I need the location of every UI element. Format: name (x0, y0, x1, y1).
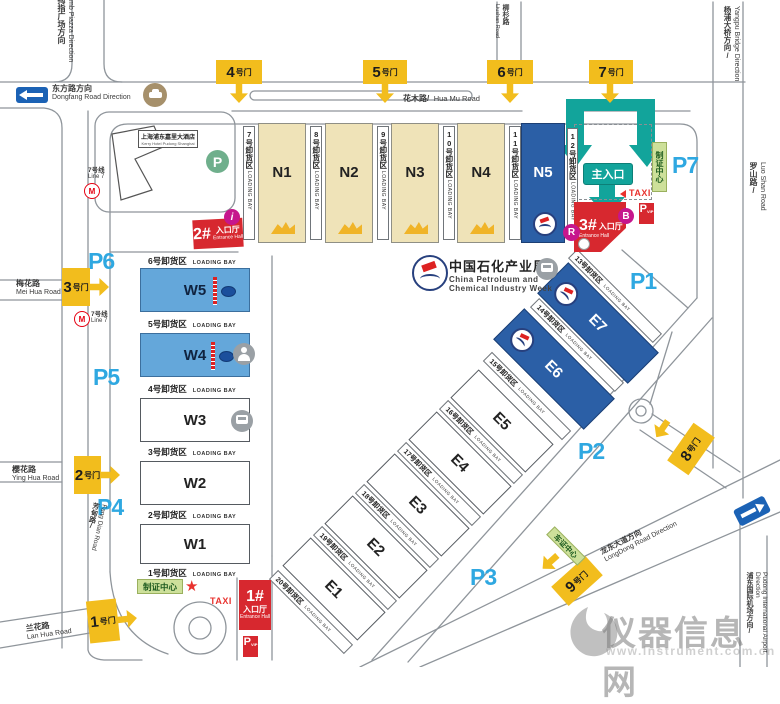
loading-bay-2-label: 2号卸货区 (148, 510, 187, 520)
loading-bay-5-en: LOADING BAY (193, 323, 237, 329)
hall-w3: W3 (140, 398, 250, 442)
direction-yangpu-en: Yangpu Bridge Direction (733, 6, 740, 126)
badge-center-right: 制证中心 (652, 142, 667, 192)
gate-3-suffix: 号门 (73, 282, 89, 293)
taxi-stand-icon (143, 83, 167, 107)
road-huamu-en: Hua Mu Road (434, 94, 480, 103)
hall-e1-label: E1 (321, 576, 346, 601)
metro-logo-icon-gate3 (74, 311, 90, 327)
expo-logo-yellow (338, 222, 362, 234)
loading-bay-10: 10号卸货区 LOADING BAY (443, 126, 455, 240)
road-yinghua-zh: 樱花路 (12, 464, 59, 475)
badge-b-letter: B (622, 211, 629, 222)
parking-p5: P5 (93, 364, 119, 391)
loading-bay-9-en: LOADING BAY (380, 171, 386, 210)
entrance-hall-2-number: 2# (193, 226, 212, 243)
gate-6: 6 号门 (487, 60, 533, 84)
gate-3: 3 号门 (62, 268, 90, 306)
hall-w2-label: W2 (184, 475, 207, 492)
gate-3-number: 3 (63, 279, 71, 296)
loading-bay-2-en: LOADING BAY (193, 514, 237, 520)
loading-bay-8-label: 8号卸货区 (312, 130, 320, 169)
gate-1: 1 号门 (86, 599, 120, 644)
direction-yangpu-zh: 杨浦大桥方向/ (722, 6, 733, 126)
loading-bay-7-en: LOADING BAY (246, 171, 252, 210)
hall-logo-blue (219, 351, 234, 362)
bus-icon (536, 258, 558, 280)
loading-bay-10-en: LOADING BAY (446, 180, 452, 219)
hall-n2: N2 (325, 123, 373, 243)
badge-r-dot (578, 238, 590, 250)
shuttle-icon (231, 410, 253, 432)
gate-7: 7 号门 (589, 60, 633, 84)
taxi-text: TAXI (629, 188, 651, 198)
road-luoshan: 罗山路/ Luo Shan Road (748, 162, 766, 272)
loading-bay-4-en: LOADING BAY (193, 388, 237, 394)
taxi-label-1: TAXI (210, 596, 232, 606)
metro-line7-zh: 7号线 (91, 308, 108, 318)
loading-bay-9-label: 9号卸货区 (379, 130, 387, 169)
loading-bay-11: 11号卸货区 LOADING BAY (509, 126, 521, 240)
hall-n3: N3 (391, 123, 439, 243)
hall-e5-label: E5 (489, 408, 514, 433)
vip-parking-vip: VIP (251, 642, 257, 647)
taxi-arrow-icon (620, 190, 626, 198)
expo-logo-yellow (470, 222, 494, 234)
main-entrance: 主入口 (583, 163, 633, 185)
parking-letter: P (213, 154, 222, 170)
badge-r-letter: R (568, 227, 575, 238)
hall-w1-label: W1 (184, 536, 207, 553)
expo-logo-yellow (271, 222, 295, 234)
hall-e7-label: E7 (585, 310, 610, 335)
vip-parking-vip: VIP (647, 209, 653, 214)
hall-w5-label: W5 (184, 282, 207, 299)
gate-4-number: 4 (226, 64, 234, 81)
entrance-hall-1-en: Entrance Hall (240, 615, 270, 621)
gate-6-suffix: 号门 (507, 67, 523, 78)
gate-4: 4 号门 (216, 60, 262, 84)
road-liushan: Liushan Road 柳杉路 (494, 4, 510, 68)
gate-6-number: 6 (497, 64, 505, 81)
parking-p1: P1 (630, 268, 656, 295)
gate-1-number: 1 (90, 613, 100, 631)
entrance-hall-1: 1# 入口厅 Entrance Hall (239, 580, 271, 630)
loading-bay-11-en: LOADING BAY (512, 180, 518, 219)
road-meihua: 梅花路 Mei Hua Road (16, 278, 61, 296)
metro-line7-en: Line 7 (91, 318, 108, 324)
gate-1-suffix: 号门 (99, 614, 116, 627)
loading-bay-2: 2号卸货区LOADING BAY (148, 509, 236, 521)
entrance-hall-3-zh: 入口厅 (599, 222, 623, 232)
gate-2-suffix: 号门 (84, 470, 100, 481)
entrance-hall-1-number: 1# (246, 589, 264, 605)
hall-w1: W1 (140, 524, 250, 564)
badge-r: R (563, 224, 580, 241)
hall-n5-label: N5 (533, 164, 552, 181)
metro-line7-zh: 7号线 (88, 164, 105, 174)
loading-bay-3-en: LOADING BAY (193, 451, 237, 457)
gate-5: 5 号门 (363, 60, 407, 84)
hall-logo-red (211, 342, 215, 370)
loading-bay-5-label: 5号卸货区 (148, 319, 187, 329)
taxi-text: TAXI (210, 596, 232, 606)
loading-bay-4: 4号卸货区LOADING BAY (148, 383, 236, 395)
hall-w4: W4 (140, 333, 250, 377)
road-huamu: 花木路/ Hua Mu Road (403, 88, 480, 106)
loading-bay-1-label: 1号卸货区 (148, 568, 187, 578)
hotel-name-zh: 上海浦东嘉里大酒店 (140, 132, 196, 141)
expo-logo-yellow (404, 222, 428, 234)
loading-bay-4-label: 4号卸货区 (148, 384, 187, 394)
direction-dongfang-zh: 东方路方向 (52, 83, 131, 94)
direction-yangpu: 杨浦大桥方向/ Yangpu Bridge Direction (722, 6, 740, 126)
direction-dongfang: 东方路方向 Dongfang Road Direction (52, 83, 131, 101)
road-luoshan-zh: 罗山路/ (748, 162, 759, 272)
loading-bay-12-label: 12号卸货区 (569, 132, 577, 180)
gate-4-suffix: 号门 (236, 67, 252, 78)
gate-2-number: 2 (75, 467, 83, 484)
road-liushan-zh: 柳杉路 (500, 4, 510, 68)
loading-bay-6-en: LOADING BAY (193, 260, 237, 266)
metro-logo-icon-hotel (84, 183, 100, 199)
hall-n1-label: N1 (272, 164, 291, 181)
loading-bay-1-en: LOADING BAY (193, 572, 237, 578)
event-logo-center (412, 255, 448, 291)
badge-b: B (618, 208, 634, 224)
road-meihua-zh: 梅花路 (16, 278, 61, 289)
parking-p3: P3 (470, 564, 496, 591)
dongfang-arrow-icon (16, 87, 48, 103)
vip-parking-p: P (244, 637, 251, 648)
loading-bay-6-label: 6号卸货区 (148, 256, 187, 266)
hall-n2-label: N2 (339, 164, 358, 181)
vip-parking-p: P (640, 204, 647, 215)
loading-bay-5: 5号卸货区LOADING BAY (148, 318, 236, 330)
direction-dongfang-en: Dongfang Road Direction (52, 94, 131, 101)
hall-logo-red (213, 277, 217, 305)
loading-bay-9: 9号卸货区 LOADING BAY (377, 126, 389, 240)
loading-bay-7-label: 7号卸货区 (245, 130, 253, 169)
hotel-label: 上海浦东嘉里大酒店 Kerry Hotel Pudong Shanghai (138, 130, 198, 148)
metro-line7-en: Line 7 (88, 174, 105, 180)
info-letter: i (231, 212, 234, 223)
sniec-expo-map: { "colors":{"gate_yellow":"#F2BD1D","par… (0, 0, 780, 667)
hotel-name-en: Kerry Hotel Pudong Shanghai (140, 141, 196, 146)
hall-n3-label: N3 (405, 164, 424, 181)
main-entrance-label: 主入口 (592, 166, 625, 182)
hall-w4-label: W4 (184, 347, 207, 364)
loading-bay-10-label: 10号卸货区 (445, 130, 453, 178)
hall-logo-blue (221, 286, 236, 297)
hall-e3-label: E3 (405, 492, 430, 517)
star-icon (185, 577, 198, 595)
hall-n4: N4 (457, 123, 505, 243)
loading-bay-8-en: LOADING BAY (313, 171, 319, 210)
gate-7-suffix: 号门 (608, 67, 624, 78)
loading-bay-3-label: 3号卸货区 (148, 447, 187, 457)
road-yinghua-en: Ying Hua Road (12, 475, 59, 482)
road-huamu-zh: 花木路/ (403, 94, 429, 103)
badge-center-bottom: 制证中心 (137, 579, 183, 594)
gate-2: 2 号门 (74, 456, 101, 494)
vip-parking-3: P VIP (639, 203, 654, 224)
hall-w5: W5 (140, 268, 250, 312)
hall-w3-label: W3 (184, 412, 207, 429)
parking-icon-hotel: P (206, 150, 229, 173)
loading-bay-3: 3号卸货区LOADING BAY (148, 446, 236, 458)
watermark-url: www.instrument.com.cn (606, 644, 776, 658)
loading-bay-11-label: 11号卸货区 (511, 130, 519, 178)
info-icon: i (224, 209, 240, 225)
metro-line7-hotel: 7号线 Line 7 (88, 164, 105, 180)
hall-e2-label: E2 (363, 534, 388, 559)
gate-7-number: 7 (598, 64, 606, 81)
hall-n1: N1 (258, 123, 306, 243)
parking-p6: P6 (88, 248, 114, 275)
road-luoshan-en: Luo Shan Road (759, 162, 766, 272)
gate-5-suffix: 号门 (382, 67, 398, 78)
road-meihua-en: Mei Hua Road (16, 289, 61, 296)
road-yinghua: 樱花路 Ying Hua Road (12, 464, 59, 482)
person-icon (233, 343, 255, 365)
hall-n5: N5 (521, 123, 565, 243)
event-title-en1: China Petroleum and (449, 275, 552, 284)
parking-p2: P2 (578, 438, 604, 465)
hall-w2: W2 (140, 461, 250, 505)
entrance-hall-2-en: Entrance Hall (213, 234, 243, 241)
loading-bay-6: 6号卸货区LOADING BAY (148, 255, 236, 267)
gate-5-number: 5 (372, 64, 380, 81)
event-logo-badge (505, 323, 539, 357)
metro-line7-gate3: 7号线 Line 7 (91, 308, 108, 324)
hall-n4-label: N4 (471, 164, 490, 181)
badge-center-bottom-label: 制证中心 (143, 581, 177, 593)
loading-bay-8: 8号卸货区 LOADING BAY (310, 126, 322, 240)
entrance-hall-3-number: 3# (579, 218, 597, 234)
event-logo-badge (549, 277, 583, 311)
badge-center-right-label: 制证中心 (654, 151, 665, 183)
vip-parking-1: P VIP (243, 636, 258, 657)
loading-bay-7: 7号卸货区 LOADING BAY (243, 126, 255, 240)
taxi-label-3: TAXI (620, 188, 651, 198)
hall-e4-label: E4 (447, 450, 472, 475)
hall-e6-label: E6 (541, 356, 566, 381)
event-title-en2: Chemical Industry Week (449, 284, 552, 293)
event-logo-badge (533, 212, 557, 236)
parking-p7: P7 (672, 152, 698, 179)
